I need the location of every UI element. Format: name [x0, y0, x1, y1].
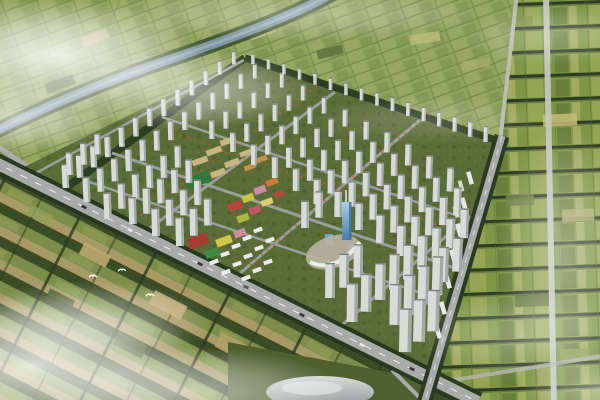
landmark-shade [349, 202, 352, 240]
tower [321, 149, 327, 170]
tower [301, 201, 309, 228]
tower [375, 263, 386, 300]
tower [265, 135, 271, 155]
tower [391, 153, 398, 176]
tower [286, 147, 292, 168]
tower [325, 263, 335, 298]
tower [313, 73, 317, 85]
tower [180, 189, 188, 215]
tower [353, 244, 363, 277]
tower [433, 177, 441, 202]
tower [189, 208, 198, 236]
tower [185, 159, 192, 183]
tower [334, 191, 342, 217]
tower [432, 256, 444, 294]
aerial-masterplan-rendering [0, 0, 600, 400]
tower [344, 82, 348, 95]
tower [293, 116, 298, 134]
tower [361, 274, 372, 312]
tower [175, 217, 184, 246]
tower [418, 186, 426, 212]
tower [377, 162, 384, 186]
tower [453, 187, 462, 215]
tower [403, 244, 414, 279]
tower [300, 137, 306, 157]
tower [376, 214, 384, 243]
tower [342, 160, 349, 184]
tower [165, 198, 173, 225]
tower [447, 167, 455, 192]
tower [370, 141, 376, 163]
bird-icon [89, 275, 97, 277]
tower [307, 158, 313, 180]
bird-icon [118, 269, 126, 271]
tower [360, 87, 364, 100]
tower [279, 125, 284, 144]
tower [111, 158, 119, 182]
tower [244, 123, 250, 142]
tower [329, 77, 333, 90]
scene-canvas [0, 0, 600, 400]
tower [383, 184, 391, 210]
tower [128, 197, 137, 224]
tower [356, 150, 363, 173]
tower [125, 148, 132, 171]
tower [153, 130, 159, 151]
tower [194, 180, 202, 206]
tower [328, 169, 335, 194]
tower [97, 167, 105, 192]
tower [412, 165, 419, 189]
tower [347, 283, 358, 322]
tower [369, 193, 377, 220]
haze-center-right [310, 95, 550, 145]
tower [293, 168, 299, 191]
tower [314, 128, 320, 148]
tower [157, 178, 165, 203]
tower [103, 192, 112, 219]
tower [460, 208, 469, 238]
tower [272, 156, 278, 178]
tower [80, 143, 87, 165]
tower [315, 191, 323, 218]
tower [417, 235, 427, 269]
tower [118, 126, 124, 147]
tower [66, 152, 73, 175]
tower [404, 195, 412, 222]
tower [139, 139, 146, 161]
tower [132, 173, 140, 198]
tower [146, 164, 153, 188]
tower [399, 308, 412, 352]
tower [142, 187, 150, 213]
tower [151, 208, 160, 236]
tower [171, 169, 179, 194]
tower [251, 144, 257, 165]
tower [117, 183, 125, 209]
tower [335, 140, 341, 161]
tower [204, 198, 212, 225]
tower [174, 145, 181, 167]
tower [439, 196, 448, 225]
tower [160, 155, 167, 178]
tower [426, 155, 433, 178]
tower [82, 177, 90, 202]
tower [363, 172, 370, 197]
tower [418, 265, 430, 304]
tower [230, 132, 236, 152]
tower [452, 237, 463, 271]
tower [355, 202, 363, 230]
tower [398, 174, 406, 199]
tower [405, 143, 412, 165]
tower [339, 254, 349, 288]
tower [104, 136, 111, 158]
